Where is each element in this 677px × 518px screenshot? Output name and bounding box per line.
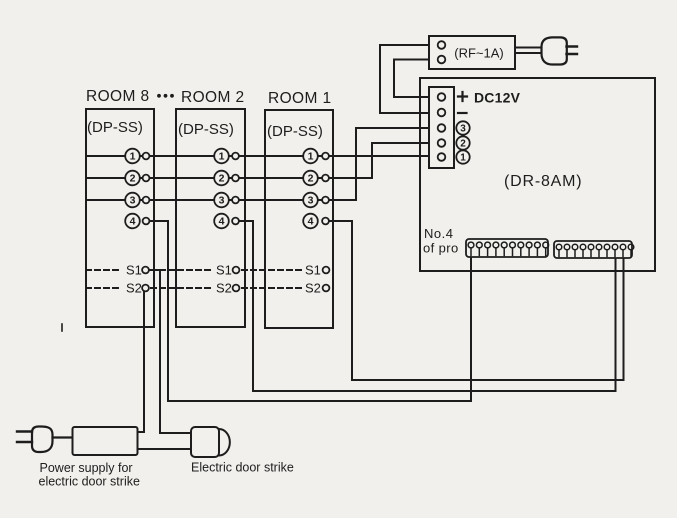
svg-text:ROOM 1: ROOM 1 [268, 90, 332, 107]
svg-text:3: 3 [308, 195, 314, 207]
svg-text:S2: S2 [126, 281, 142, 296]
svg-text:ROOM 8: ROOM 8 [86, 88, 150, 105]
svg-text:2: 2 [460, 139, 466, 150]
svg-text:1: 1 [308, 151, 314, 163]
svg-text:2: 2 [308, 173, 314, 185]
svg-text:No.4: No.4 [424, 226, 453, 241]
svg-text:4: 4 [130, 216, 136, 228]
svg-text:3: 3 [130, 195, 136, 207]
svg-text:3: 3 [460, 124, 466, 135]
svg-text:S1: S1 [126, 263, 142, 278]
svg-text:4: 4 [219, 216, 225, 228]
svg-text:1: 1 [130, 151, 136, 163]
svg-text:1: 1 [219, 151, 225, 163]
svg-text:S1: S1 [216, 263, 232, 278]
svg-text:DC12V: DC12V [474, 90, 521, 106]
svg-text:(DR-8AM): (DR-8AM) [504, 173, 582, 190]
svg-text:2: 2 [130, 173, 136, 185]
svg-text:(DP-SS): (DP-SS) [267, 123, 323, 140]
svg-text:S1: S1 [305, 263, 321, 278]
svg-text:(RF~1A): (RF~1A) [454, 46, 503, 61]
svg-text:3: 3 [219, 195, 225, 207]
svg-text:S2: S2 [305, 281, 321, 296]
svg-text:S2: S2 [216, 281, 232, 296]
svg-text:1: 1 [460, 153, 466, 164]
svg-text:ROOM 2: ROOM 2 [181, 89, 245, 106]
svg-text:2: 2 [219, 173, 225, 185]
svg-text:(DP-SS): (DP-SS) [87, 119, 143, 136]
svg-text:Electric door strike: Electric door strike [191, 461, 294, 475]
svg-text:of pro: of pro [423, 241, 459, 256]
svg-text:Power supply for: Power supply for [40, 461, 133, 475]
svg-text:4: 4 [308, 216, 314, 228]
svg-text:(DP-SS): (DP-SS) [178, 121, 234, 138]
svg-text:electric door strike: electric door strike [39, 475, 140, 489]
